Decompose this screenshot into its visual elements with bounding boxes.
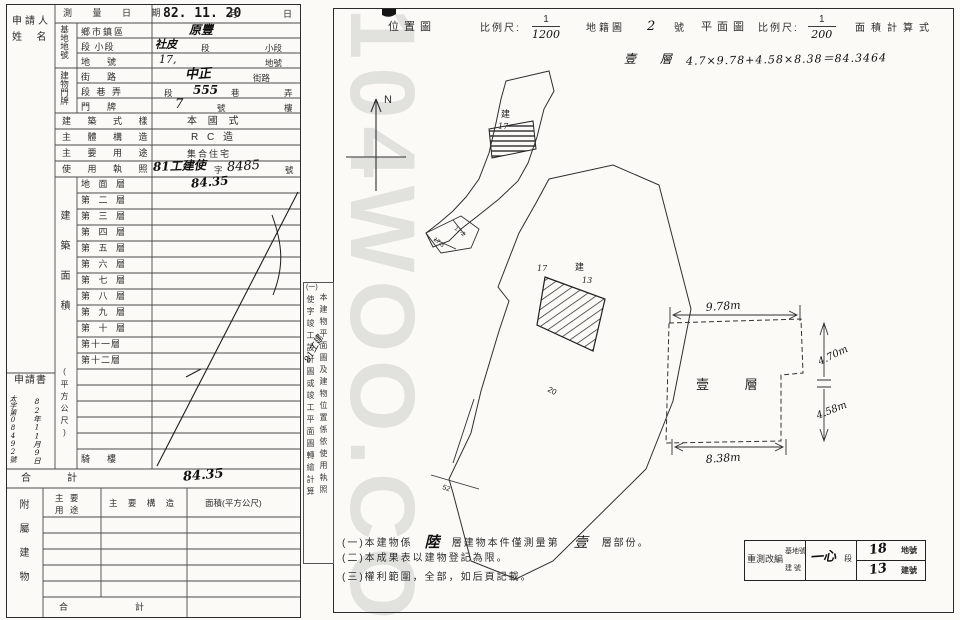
- stamp-building-value: 13: [868, 562, 888, 577]
- lane-unit-duan: 段: [164, 89, 173, 98]
- location-label-jian: 建: [501, 108, 510, 119]
- note-line-1: (一)本建物係 陸 層建物本件僅測量第 壹 層部份。: [342, 531, 650, 552]
- resurvey-stamp-table: 重測改編 基地號 建 號 一心 段 18 地號 13 建號: [744, 540, 926, 581]
- note-line-2: (二)本成果表以建物登記為限。: [342, 554, 509, 564]
- applicant-label-line1: 申請人: [12, 17, 51, 27]
- margin-note-strip: (一) 本建物平面圖及建物位置係依使用執照 使字竣工設計圖或竣工平面圖轉繪計算 …: [303, 282, 334, 564]
- floor-row-label: 第 三 層: [81, 212, 128, 221]
- location-sublot-label: 17-2: [453, 226, 467, 239]
- structure-value: R C 造: [191, 133, 236, 143]
- area-total-label-he: 合: [21, 474, 31, 484]
- plan-label-jian: 建: [575, 261, 584, 272]
- lane-unit-nong: 弄: [284, 89, 293, 98]
- section-label: 段 小段: [81, 43, 115, 52]
- area-total-label-ji: 計: [67, 474, 77, 484]
- hand-slash-mark: [157, 192, 298, 466]
- lot-number-unit: 地號: [265, 59, 282, 68]
- floor-row-label: 第 七 層: [81, 276, 128, 285]
- lane-unit-xiang: 巷: [231, 89, 240, 98]
- door-floor-unit: 樓: [284, 104, 293, 113]
- style-label: 建 築 式 樣: [62, 117, 155, 126]
- floor-row-label: 第 四 層: [81, 228, 128, 237]
- subsection-unit: 小段: [265, 44, 282, 53]
- survey-day-unit: 日: [283, 10, 292, 19]
- street-unit: 街路: [253, 74, 270, 83]
- door-number-unit: 號: [217, 104, 226, 113]
- location-sublot-label: 17-3: [432, 237, 446, 250]
- floor-row-label: 第 五 層: [81, 244, 128, 253]
- license-number-value: 8485: [227, 159, 261, 174]
- lane-value: 555: [193, 84, 218, 96]
- floor-row-label: 地 面 層: [81, 180, 128, 189]
- strip-note-left-column: 使字竣工設計圖或竣工平面圖轉繪計算: [306, 295, 314, 559]
- district-label: 鄉市鎮區: [81, 28, 125, 37]
- north-label: N: [384, 94, 392, 106]
- map-sheet: 位置圖 比例尺: 1 1200 地籍圖 2 號 平面圖 比例尺: 1 200 面…: [333, 8, 954, 613]
- license-hao-unit: 號: [285, 166, 294, 175]
- attached-building-group-label: 附屬建物: [17, 499, 27, 607]
- map-drawing: N 建 17 17-2 17-3 17 建 13 20 52: [334, 9, 953, 612]
- attached-structure-header: 主 要 構 造: [109, 499, 178, 508]
- attached-use-header-1: 主 要: [55, 494, 80, 503]
- floor-row-label: 第 九 層: [81, 308, 128, 317]
- stamp-sub-bottom: 建 號: [785, 565, 801, 572]
- site-group-label: 基地地號: [60, 25, 69, 67]
- usage-label: 主 要 用 途: [62, 149, 155, 158]
- stamp-sub-top: 基地號: [785, 548, 806, 555]
- floor-row-label: 第 十 層: [81, 324, 128, 333]
- dimension-label-right-top: 4.70m: [816, 344, 850, 368]
- note1-pre: (一)本建物係: [342, 534, 413, 549]
- license-label: 使 用 執 照: [62, 165, 155, 174]
- plan-label-52: 52: [441, 484, 451, 493]
- style-value: 本 國 式: [187, 117, 243, 127]
- ink-mark: [382, 9, 396, 17]
- plan-parcel-outline: [449, 165, 691, 579]
- stamp-title: 重測改編: [747, 555, 783, 564]
- floor-row-label: 第 二 層: [81, 196, 128, 205]
- stamp-section-value: 一心: [810, 550, 837, 565]
- location-parcel-outline: [426, 71, 554, 247]
- stamp-lot-value: 18: [868, 542, 888, 557]
- application-doc-label: 申請書: [14, 376, 47, 386]
- floor-plan-room-label: 壹 層: [696, 377, 774, 392]
- doorplate-group-label: 建物門牌: [60, 71, 69, 113]
- license-prefix-value: 81工建使: [153, 159, 206, 173]
- floor-ground-value: 84.35: [191, 174, 229, 189]
- attached-total-label-ji: 計: [135, 603, 144, 612]
- plan-label-20: 20: [546, 385, 559, 397]
- street-value: 中正: [185, 67, 212, 81]
- note1-floor-hand: 壹: [574, 532, 588, 552]
- stamp-building-unit: 建號: [901, 567, 917, 575]
- floor-row-label: 第 八 層: [81, 292, 128, 301]
- arcade-row-label: 騎 樓: [81, 455, 120, 464]
- note1-mid: 層建物本件僅測量第: [452, 534, 560, 549]
- area-total-value: 84.35: [183, 467, 225, 483]
- strip-head: (一): [306, 284, 318, 291]
- survey-date-label: 測 量 日 期: [63, 9, 170, 18]
- attached-use-header-2: 用 途: [55, 506, 80, 515]
- structure-label: 主 體 構 造: [62, 133, 155, 142]
- stamp-numbers-cell: 18 地號 13 建號: [856, 541, 925, 580]
- north-arrow: [346, 99, 406, 191]
- scanned-survey-document: WW.104WOO.COM.W 申請人 姓 名 申請書 太字第08492號 82…: [0, 0, 960, 620]
- plan-label-building-number: 13: [582, 276, 592, 285]
- floor-row-label: 第十二層: [81, 356, 121, 365]
- application-date: 82年11月9日: [33, 397, 41, 467]
- location-building-hatch: [489, 121, 536, 158]
- stamp-section-unit: 段: [844, 555, 852, 563]
- lot-number-label: 地 號: [81, 58, 120, 67]
- strip-note-right-column: 本建物平面圖及建物位置係依使用執照: [319, 293, 327, 559]
- note1-storeys-hand: 陸: [425, 531, 440, 552]
- note1-post: 層部份。: [602, 534, 650, 549]
- survey-month-unit: 月: [229, 10, 238, 19]
- stamp-lot-unit: 地號: [901, 547, 917, 555]
- applicant-label-line2: 姓 名: [12, 33, 50, 43]
- dimension-label-top: 9.78m: [705, 299, 741, 314]
- door-number-value: 7: [175, 98, 183, 111]
- plan-label-lot: 17: [537, 264, 548, 273]
- door-number-label: 門 牌: [81, 103, 120, 112]
- stamp-divider: [857, 560, 925, 561]
- plan-boundary-segments: [431, 399, 479, 489]
- form-grid-lines: [7, 5, 300, 617]
- left-form-table: 申請人 姓 名 申請書 太字第08492號 82年11月9日 測 量 日 期 8…: [6, 4, 301, 618]
- note-line-3: (三)權利範圍，全部，如后頁記載。: [342, 573, 533, 583]
- attached-area-header: 面積(平方公尺): [205, 499, 262, 508]
- location-label-lot: 17: [498, 122, 509, 131]
- stamp-section-cell: 一心 段: [805, 541, 856, 580]
- lot-number-value: 17,: [159, 54, 177, 65]
- building-area-unit-label: (平方公尺): [60, 367, 68, 437]
- district-value: 原豐: [189, 24, 213, 36]
- dimension-label-right-bottom: 4.58m: [814, 400, 848, 422]
- plan-building-hatch: [537, 277, 605, 351]
- section-unit: 段: [201, 44, 210, 53]
- street-label: 街 路: [81, 73, 120, 82]
- lane-label: 段 巷 弄: [81, 88, 123, 97]
- floor-row-label: 第十一層: [81, 340, 121, 349]
- dimension-label-bottom: 8.38m: [705, 451, 741, 466]
- building-area-column-label: 建築面積: [58, 210, 68, 360]
- section-value: 社皮: [155, 39, 177, 50]
- stamp-title-cell: 重測改編 基地號 建 號: [745, 541, 805, 580]
- floor-row-label: 第 六 層: [81, 260, 128, 269]
- attached-total-label-he: 合: [59, 603, 68, 612]
- application-ref-number: 太字第08492號: [9, 395, 16, 467]
